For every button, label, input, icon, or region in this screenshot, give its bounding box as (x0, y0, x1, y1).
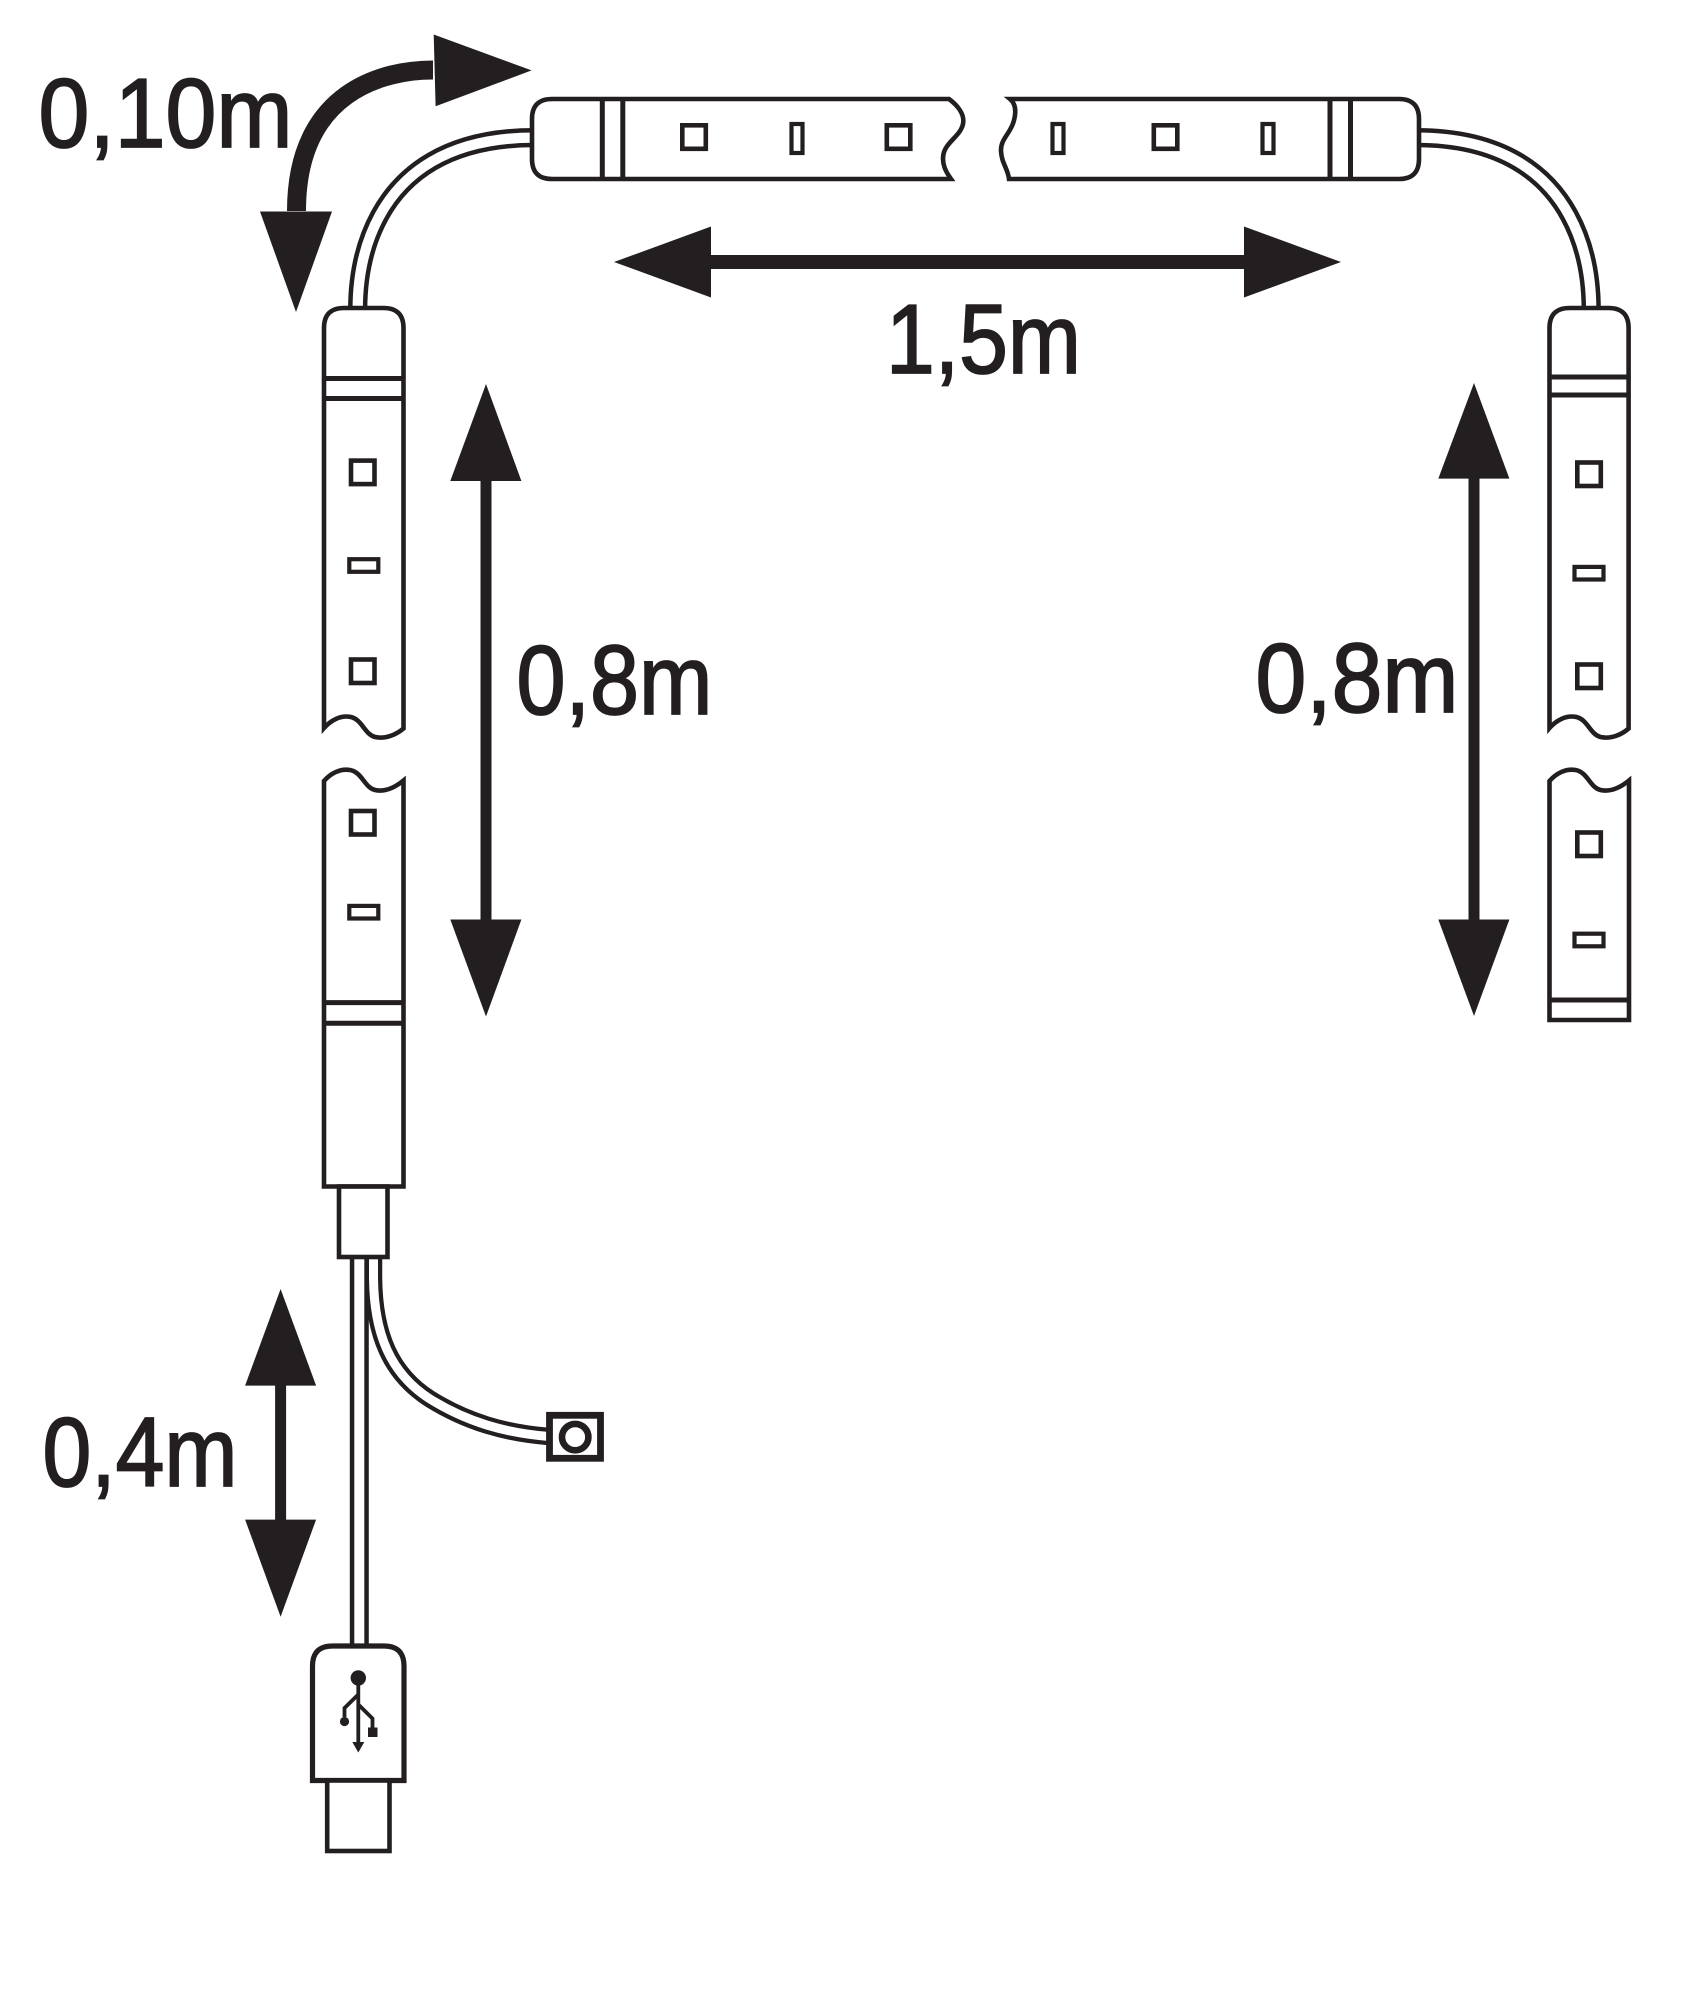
svg-text:0,10m: 0,10m (39, 58, 293, 168)
svg-text:0,4m: 0,4m (43, 1397, 238, 1507)
svg-text:0,8m: 0,8m (517, 625, 713, 735)
svg-text:1,5m: 1,5m (886, 284, 1081, 394)
svg-text:0,8m: 0,8m (1256, 623, 1459, 733)
